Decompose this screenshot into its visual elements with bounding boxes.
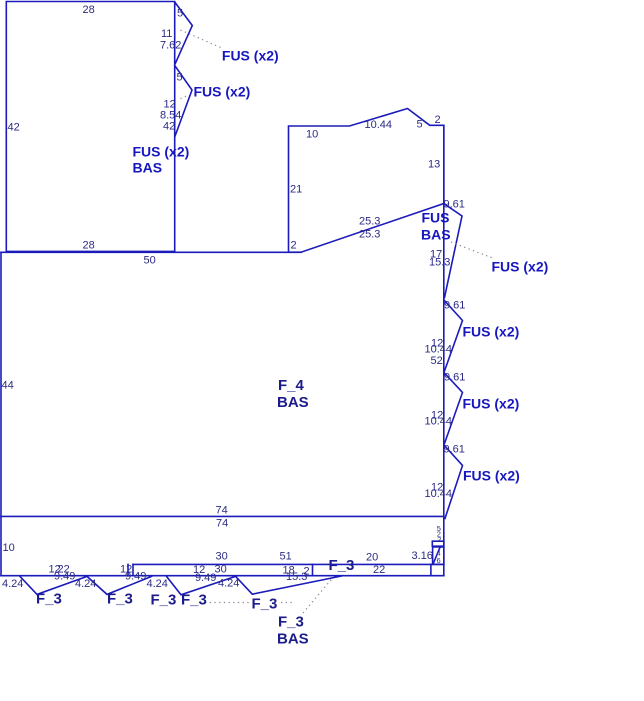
svg-text:F_3: F_3 — [151, 592, 177, 609]
svg-text:50: 50 — [144, 255, 156, 267]
svg-text:21: 21 — [290, 184, 302, 196]
svg-text:25.3: 25.3 — [359, 216, 380, 228]
svg-text:FUS (x2): FUS (x2) — [222, 48, 279, 64]
svg-text:F_3: F_3 — [36, 591, 62, 608]
svg-text:2: 2 — [437, 535, 441, 544]
svg-text:FUS (x2): FUS (x2) — [463, 396, 520, 412]
svg-text:10.44: 10.44 — [425, 488, 453, 500]
svg-text:2: 2 — [291, 240, 297, 252]
svg-text:BAS: BAS — [277, 394, 309, 411]
svg-text:52: 52 — [431, 355, 443, 367]
svg-text:25.3: 25.3 — [359, 229, 380, 241]
svg-text:4.24: 4.24 — [75, 578, 96, 590]
svg-text:FUS (x2): FUS (x2) — [194, 84, 251, 100]
svg-text:F_3: F_3 — [252, 596, 278, 613]
svg-text:10.44: 10.44 — [425, 344, 453, 356]
svg-text:4.24: 4.24 — [147, 578, 168, 590]
svg-text:9.61: 9.61 — [444, 444, 465, 456]
svg-text:4.24: 4.24 — [218, 578, 239, 590]
svg-text:10.44: 10.44 — [365, 119, 393, 131]
svg-text:28: 28 — [83, 240, 95, 252]
svg-text:FUS (x2): FUS (x2) — [463, 468, 520, 484]
svg-text:F_3: F_3 — [107, 591, 133, 608]
svg-text:FUS (x2): FUS (x2) — [492, 259, 549, 275]
svg-text:9.61: 9.61 — [444, 300, 465, 312]
svg-text:13: 13 — [428, 159, 440, 171]
svg-text:9.61: 9.61 — [444, 372, 465, 384]
svg-text:9.49: 9.49 — [195, 572, 216, 584]
svg-text:BAS: BAS — [133, 160, 163, 176]
svg-text:10: 10 — [3, 542, 15, 554]
svg-text:9.49: 9.49 — [125, 571, 146, 583]
svg-text:9.49: 9.49 — [54, 571, 75, 583]
svg-text:44: 44 — [2, 380, 14, 392]
svg-text:FUS: FUS — [422, 210, 450, 226]
svg-text:15.3: 15.3 — [429, 257, 450, 269]
svg-text:10.44: 10.44 — [425, 416, 453, 428]
svg-text:F_3: F_3 — [278, 614, 304, 631]
svg-text:42: 42 — [8, 122, 20, 134]
svg-text:10: 10 — [306, 129, 318, 141]
svg-text:4.24: 4.24 — [2, 578, 23, 590]
svg-text:2: 2 — [435, 114, 441, 126]
svg-text:51: 51 — [280, 551, 292, 563]
svg-text:BAS: BAS — [277, 631, 309, 648]
svg-text:74: 74 — [216, 518, 228, 530]
svg-text:22: 22 — [373, 564, 385, 576]
svg-text:20: 20 — [366, 552, 378, 564]
svg-text:15.3: 15.3 — [286, 571, 307, 583]
svg-text:F_4: F_4 — [278, 377, 305, 394]
svg-text:42: 42 — [163, 121, 175, 133]
svg-text:7.62: 7.62 — [160, 40, 181, 52]
svg-text:30: 30 — [216, 551, 228, 563]
svg-text:FUS (x2): FUS (x2) — [133, 144, 190, 160]
svg-text:F_3: F_3 — [329, 557, 355, 574]
svg-text:74: 74 — [216, 505, 228, 517]
svg-text:3.16: 3.16 — [412, 550, 433, 562]
svg-text:28: 28 — [83, 4, 95, 16]
svg-text:F_3: F_3 — [181, 592, 207, 609]
svg-text:BAS: BAS — [421, 227, 451, 243]
svg-text:5: 5 — [177, 8, 183, 20]
svg-text:5: 5 — [417, 119, 423, 131]
svg-text:FUS (x2): FUS (x2) — [463, 324, 520, 340]
svg-text:5: 5 — [177, 72, 183, 84]
svg-text:6: 6 — [437, 556, 441, 565]
svg-text:11: 11 — [161, 28, 172, 40]
